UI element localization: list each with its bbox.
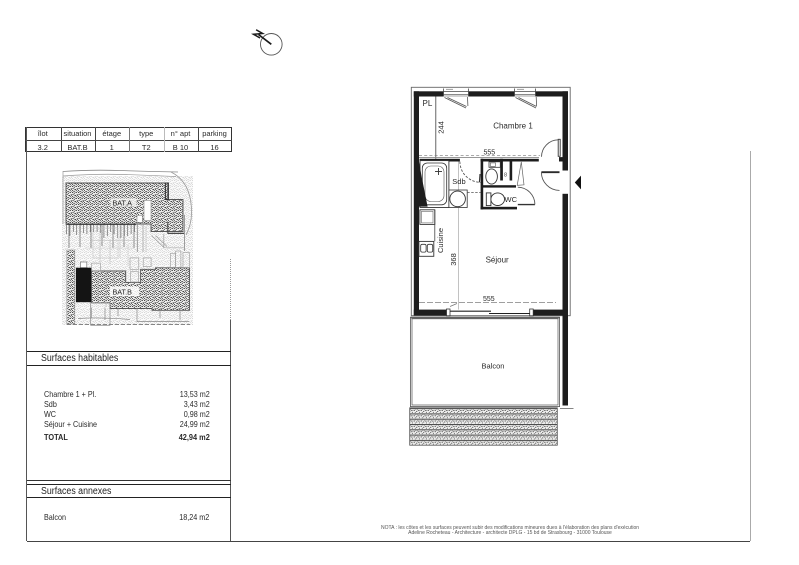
svg-text:Balcon: Balcon xyxy=(482,362,505,371)
svg-text:PL: PL xyxy=(423,99,433,108)
svg-text:368: 368 xyxy=(449,253,458,266)
svg-text:8: 8 xyxy=(504,173,507,179)
svg-text:Sdb: Sdb xyxy=(452,177,465,186)
svg-text:Séjour: Séjour xyxy=(486,256,509,265)
svg-text:Chambre 1: Chambre 1 xyxy=(493,121,533,130)
svg-text:555: 555 xyxy=(483,296,495,303)
svg-text:Cuisine: Cuisine xyxy=(436,228,445,253)
svg-text:244: 244 xyxy=(437,121,446,134)
svg-text:BAT.A: BAT.A xyxy=(113,199,133,208)
svg-text:BAT.B: BAT.B xyxy=(113,288,133,297)
svg-text:555: 555 xyxy=(484,150,496,157)
svg-text:WC: WC xyxy=(505,195,518,204)
